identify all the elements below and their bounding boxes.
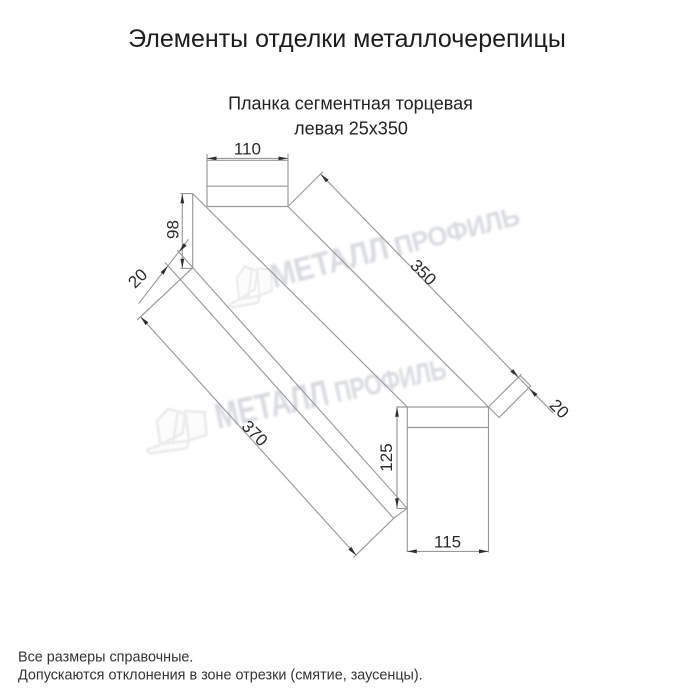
svg-text:Элементы отделки металлочерепи: Элементы отделки металлочерепицы (128, 25, 566, 53)
svg-text:98: 98 (163, 220, 182, 239)
svg-text:Планка сегментная торцевая: Планка сегментная торцевая (228, 94, 473, 114)
svg-text:Все размеры справочные.: Все размеры справочные. (18, 650, 193, 666)
svg-text:Допускаются отклонения в зоне: Допускаются отклонения в зоне отрезки (с… (18, 668, 423, 684)
svg-text:110: 110 (234, 139, 261, 158)
svg-text:115: 115 (434, 533, 461, 552)
svg-text:125: 125 (377, 443, 396, 471)
svg-text:левая 25х350: левая 25х350 (294, 118, 408, 138)
